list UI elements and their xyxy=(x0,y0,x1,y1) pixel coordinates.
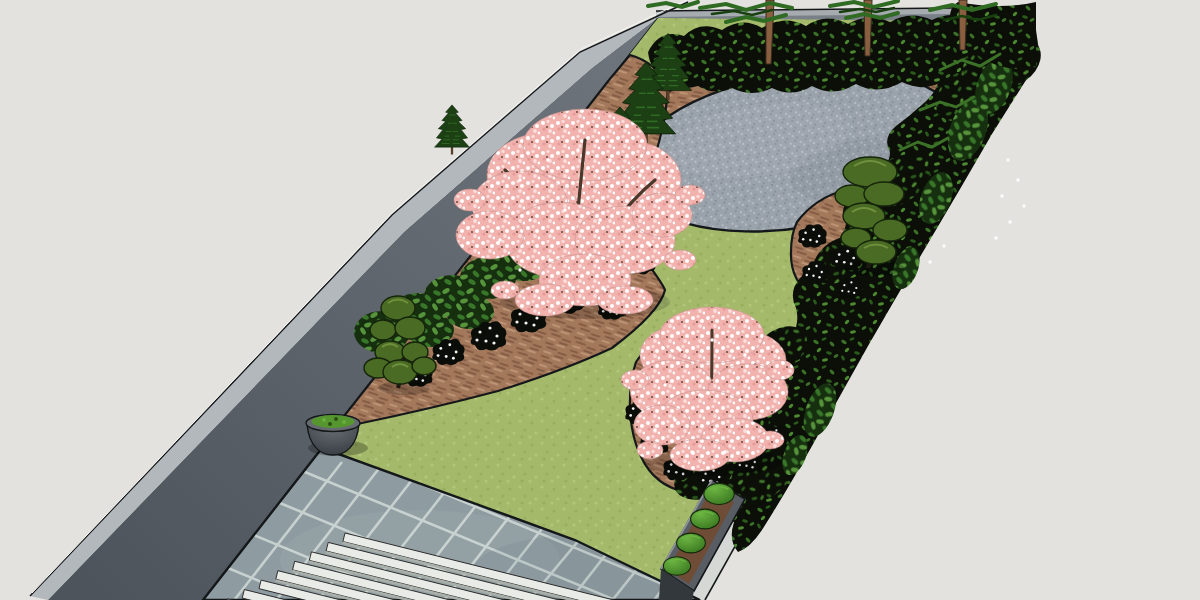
box-ball xyxy=(704,484,734,505)
box-ball xyxy=(691,509,720,529)
garden-render-stage xyxy=(0,0,1200,600)
garden-3d-render xyxy=(0,0,1200,600)
box-ball xyxy=(663,557,690,576)
box-ball xyxy=(677,533,706,553)
